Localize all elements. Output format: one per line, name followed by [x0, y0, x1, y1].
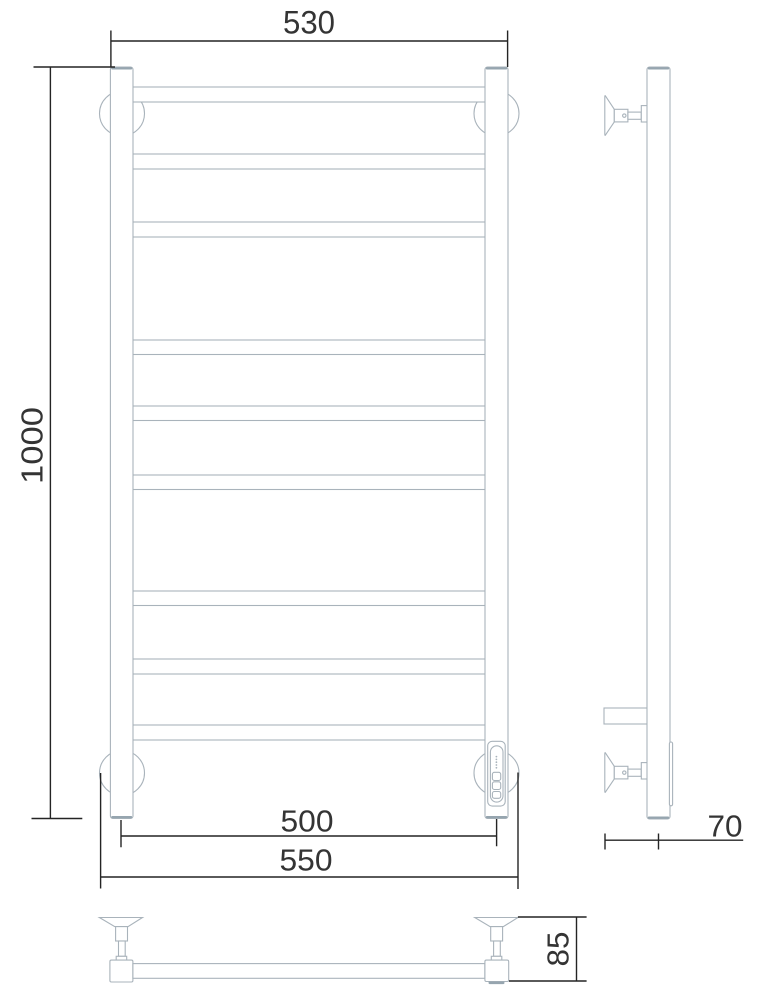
svg-text:530: 530: [283, 5, 335, 41]
svg-text:550: 550: [280, 843, 333, 878]
svg-text:85: 85: [541, 932, 576, 967]
svg-text:1000: 1000: [15, 407, 50, 484]
svg-text:70: 70: [708, 809, 743, 844]
svg-text:500: 500: [281, 804, 334, 839]
